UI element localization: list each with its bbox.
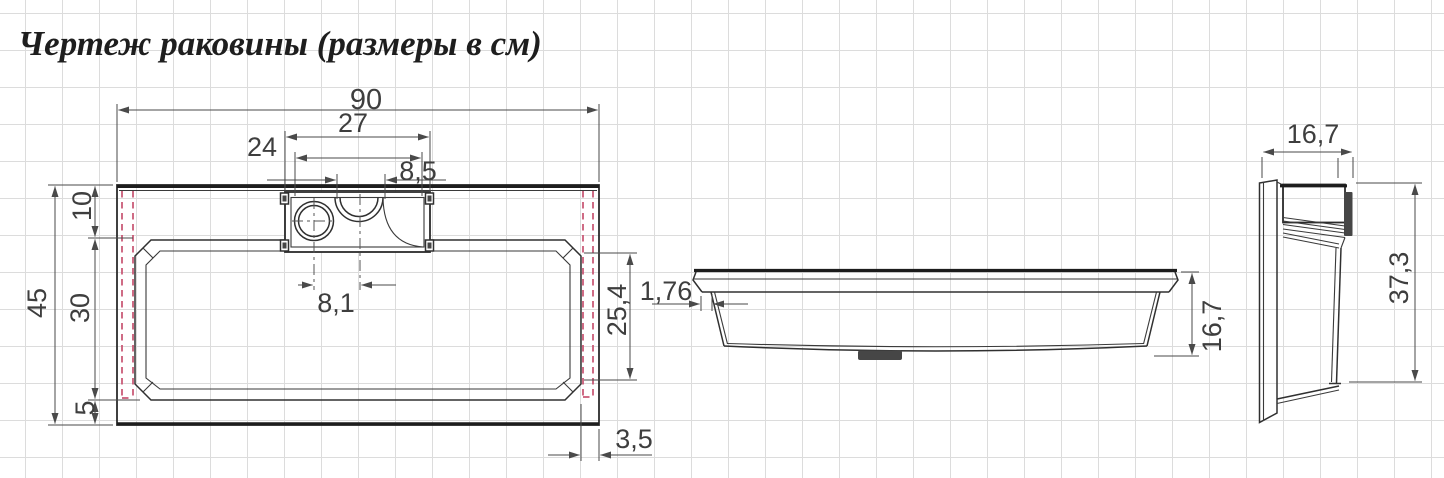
front-view-lines	[693, 271, 1178, 361]
dim-hole-to-cutout-label: 8,1	[301, 288, 371, 318]
dim-front-height-label: 16,7	[1197, 280, 1227, 372]
side-view-lines	[1260, 180, 1353, 423]
dim-cutout-width-label: 8,5	[383, 156, 453, 186]
dim-deck-width-label: 27	[318, 108, 388, 138]
dim-side-height-label: 37,3	[1384, 232, 1414, 324]
dim-overall-depth-label: 45	[22, 268, 52, 338]
drawing-sheet: Чертеж раковины (размеры в см)	[0, 0, 1444, 478]
dim-side-depth-label: 16,7	[1267, 119, 1359, 149]
drawing-canvas	[0, 0, 1444, 478]
dim-rim-bottom-depth-label: 5	[70, 373, 100, 443]
dim-edge-gap-label: 3,5	[599, 424, 669, 454]
dim-wall-thickness-label: 1,76	[620, 276, 712, 306]
dim-deck-inner-width-label: 24	[227, 132, 297, 162]
dim-rim-top-depth-label: 10	[67, 171, 97, 241]
dim-basin-depth-label: 30	[65, 273, 95, 343]
